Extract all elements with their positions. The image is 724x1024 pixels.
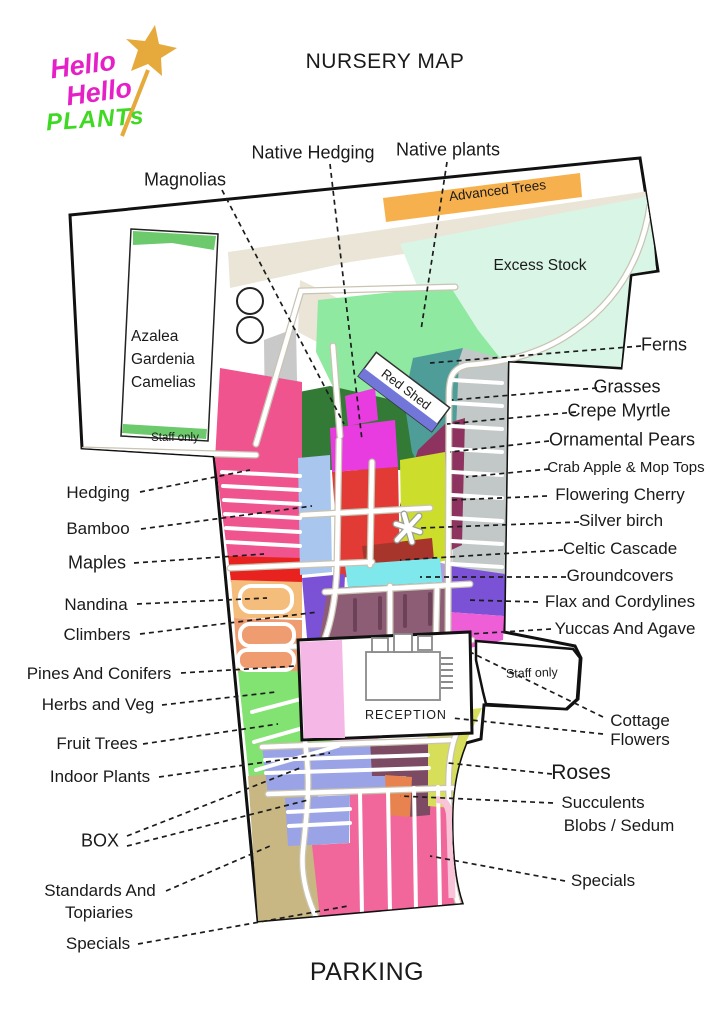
label-flowering-cherry: Flowering Cherry: [555, 486, 684, 504]
label-specials-left: Specials: [66, 935, 130, 953]
label-flax: Flax and Cordylines: [545, 593, 695, 611]
label-roses: Roses: [551, 762, 611, 784]
label-cottage-2: Flowers: [610, 731, 670, 749]
label-standards-2: Topiaries: [65, 904, 133, 922]
label-herbs: Herbs and Veg: [42, 696, 154, 714]
label-crab-apple: Crab Apple & Mop Tops: [547, 460, 704, 476]
page-title: NURSERY MAP: [306, 51, 465, 73]
label-groundcovers: Groundcovers: [567, 567, 674, 585]
azalea-label-2: Gardenia: [131, 351, 195, 368]
parking-label: PARKING: [310, 959, 424, 985]
label-nandina: Nandina: [64, 596, 127, 614]
label-bamboo: Bamboo: [66, 520, 129, 538]
leader-roses: [448, 763, 552, 774]
label-crepe-myrtle: Crepe Myrtle: [567, 402, 670, 421]
label-native-hedging: Native Hedging: [251, 144, 374, 163]
label-magnolias: Magnolias: [144, 171, 226, 190]
pond-circle-2: [237, 317, 263, 343]
azalea-label-1: Azalea: [131, 328, 179, 345]
label-hedging: Hedging: [66, 484, 129, 502]
label-cottage-1: Cottage: [610, 712, 670, 730]
label-fruit-trees: Fruit Trees: [56, 735, 137, 753]
label-specials-right: Specials: [571, 872, 635, 890]
label-succulents-2: Blobs / Sedum: [564, 817, 675, 835]
staff-only-top-label: Staff only: [151, 432, 199, 444]
nursery-map-page: Red Shed RECEPTION Azalea Gardenia Camel…: [0, 0, 724, 1024]
azalea-label-3: Camelias: [131, 374, 196, 391]
label-climbers: Climbers: [63, 626, 130, 644]
label-box: BOX: [81, 832, 119, 851]
label-standards-1: Standards And: [44, 882, 156, 900]
label-ferns: Ferns: [641, 336, 687, 355]
label-silver-birch: Silver birch: [579, 512, 663, 530]
label-native-plants: Native plants: [396, 141, 500, 160]
leader-specials-left: [138, 906, 348, 944]
label-succulents-1: Succulents: [561, 794, 644, 812]
reception-box: RECEPTION: [298, 632, 472, 740]
label-yuccas: Yuccas And Agave: [555, 620, 696, 638]
excess-stock-label: Excess Stock: [493, 257, 586, 274]
logo-star-icon: [126, 25, 177, 76]
label-maples: Maples: [68, 554, 126, 573]
reception-label: RECEPTION: [365, 708, 447, 722]
label-grasses: Grasses: [593, 378, 660, 397]
label-indoor-plants: Indoor Plants: [50, 768, 150, 786]
label-celtic-cascade: Celtic Cascade: [563, 540, 677, 558]
label-ornamental-pears: Ornamental Pears: [549, 431, 695, 450]
region-flax: [448, 566, 505, 616]
pond-circle-1: [237, 288, 263, 314]
label-pines: Pines And Conifers: [27, 665, 172, 683]
